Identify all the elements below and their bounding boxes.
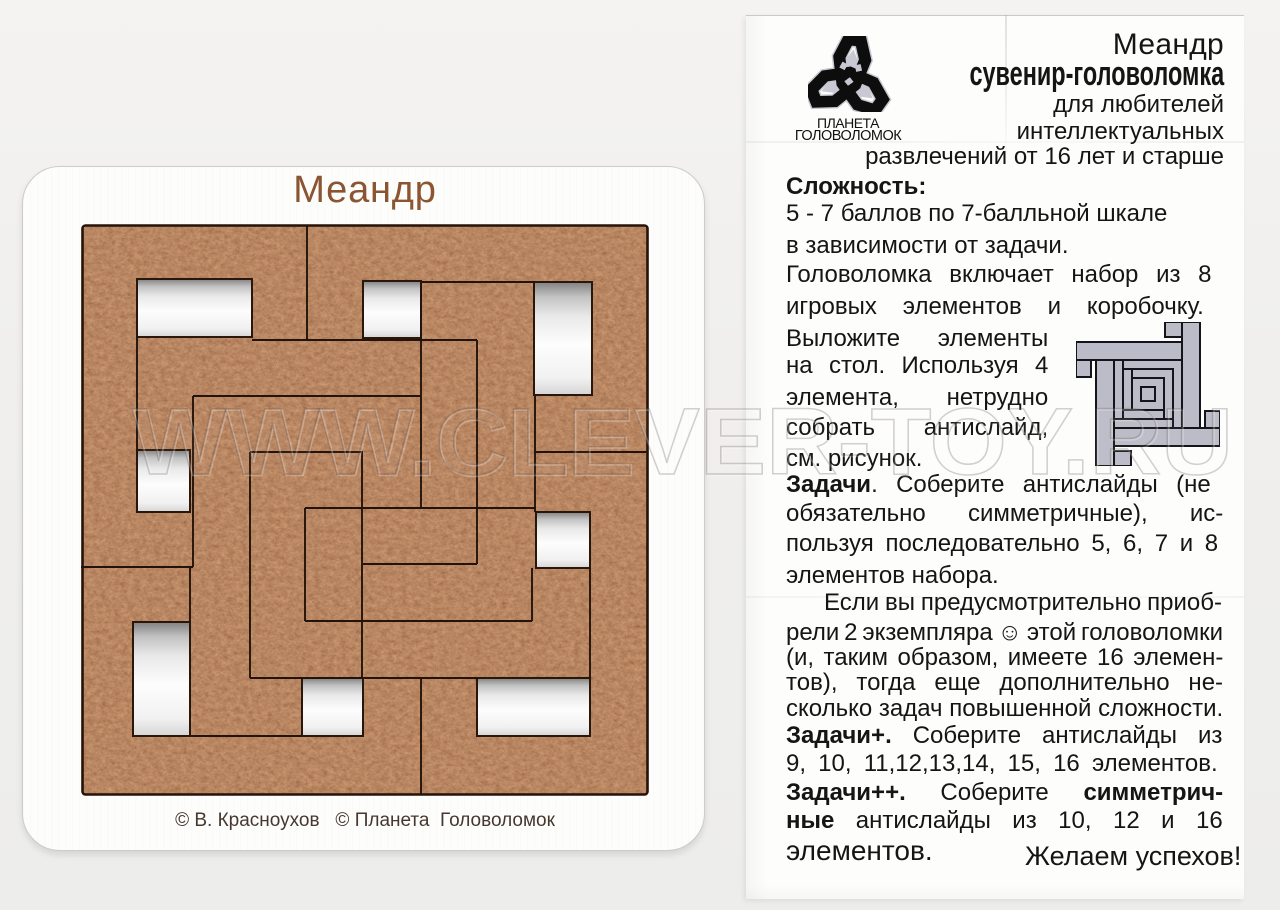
svg-text:WWW.CLEVER-TOY.RU: WWW.CLEVER-TOY.RU [132,389,1233,495]
